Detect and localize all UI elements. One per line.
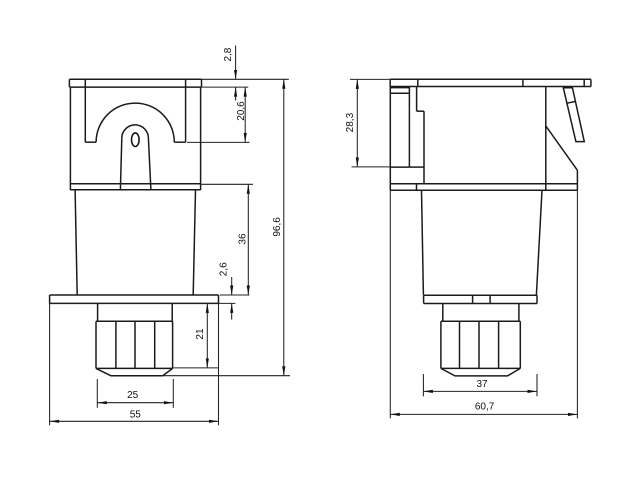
svg-text:60,7: 60,7 (475, 401, 495, 412)
svg-text:2,8: 2,8 (223, 47, 234, 61)
svg-text:55: 55 (130, 410, 142, 421)
svg-text:37: 37 (476, 379, 488, 390)
svg-text:21: 21 (195, 328, 206, 340)
svg-text:96,6: 96,6 (272, 217, 283, 237)
svg-text:25: 25 (127, 390, 139, 401)
svg-text:28,3: 28,3 (345, 112, 356, 132)
svg-text:36: 36 (238, 233, 249, 245)
svg-text:2,6: 2,6 (219, 262, 230, 276)
svg-text:20,6: 20,6 (236, 101, 247, 121)
